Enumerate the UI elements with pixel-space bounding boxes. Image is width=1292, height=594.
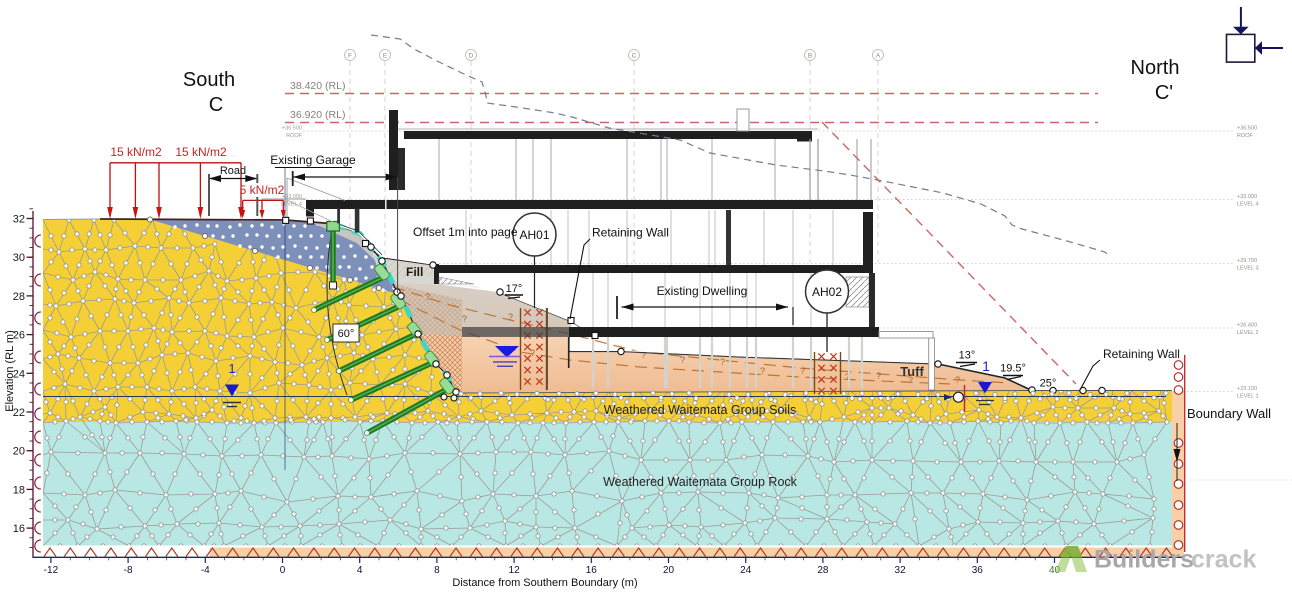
svg-text:1: 1 xyxy=(228,361,235,376)
svg-text:Retaining Wall: Retaining Wall xyxy=(1103,347,1180,361)
svg-text:+33.000: +33.000 xyxy=(1237,194,1257,200)
svg-text:12: 12 xyxy=(509,565,521,576)
svg-text:A: A xyxy=(876,53,881,60)
svg-text:Distance from Southern Boundar: Distance from Southern Boundary (m) xyxy=(452,577,637,589)
svg-text:32: 32 xyxy=(895,565,907,576)
svg-text:Road: Road xyxy=(220,165,246,177)
svg-text:?: ? xyxy=(800,366,805,376)
svg-text:AH02: AH02 xyxy=(812,285,842,299)
svg-text:-4: -4 xyxy=(201,565,210,576)
svg-text:18: 18 xyxy=(13,484,25,496)
svg-text:D: D xyxy=(469,53,474,60)
svg-text:Boundary Wall: Boundary Wall xyxy=(1187,406,1271,421)
svg-text:B: B xyxy=(808,53,812,60)
svg-text:Weathered Waitemata Group Soil: Weathered Waitemata Group Soils xyxy=(604,403,796,417)
svg-text:5 kN/m2: 5 kN/m2 xyxy=(240,183,285,197)
svg-text:16: 16 xyxy=(586,565,598,576)
svg-text:28: 28 xyxy=(13,291,25,303)
svg-text:15 kN/m2: 15 kN/m2 xyxy=(110,145,162,159)
svg-text:-12: -12 xyxy=(44,565,59,576)
svg-text:17°: 17° xyxy=(506,283,523,295)
svg-text:F: F xyxy=(348,53,352,60)
svg-text:8: 8 xyxy=(434,565,440,576)
svg-text:North: North xyxy=(1131,57,1180,79)
svg-text:?: ? xyxy=(760,366,765,376)
svg-text:38.420 (RL): 38.420 (RL) xyxy=(290,80,345,92)
svg-text:13°: 13° xyxy=(959,350,976,362)
svg-text:?: ? xyxy=(508,312,513,322)
svg-text:Fill: Fill xyxy=(406,265,423,279)
svg-text:crack: crack xyxy=(1191,546,1256,574)
svg-text:20: 20 xyxy=(663,565,675,576)
svg-text:36.920 (RL): 36.920 (RL) xyxy=(290,109,345,121)
svg-text:28: 28 xyxy=(817,565,829,576)
svg-text:?: ? xyxy=(876,371,881,381)
svg-text:Builders: Builders xyxy=(1094,546,1194,574)
svg-text:?: ? xyxy=(425,292,430,302)
svg-text:?: ? xyxy=(955,375,960,385)
svg-text:25°: 25° xyxy=(1040,378,1057,390)
svg-text:Existing Dwelling: Existing Dwelling xyxy=(657,284,748,298)
svg-text:16: 16 xyxy=(13,523,25,535)
svg-text:30: 30 xyxy=(13,252,25,264)
svg-text:60°: 60° xyxy=(338,328,355,340)
svg-text:LEVEL 1: LEVEL 1 xyxy=(1237,394,1259,400)
svg-text:E: E xyxy=(383,53,388,60)
svg-text:15 kN/m2: 15 kN/m2 xyxy=(175,145,227,159)
svg-text:Weathered Waitemata Group Rock: Weathered Waitemata Group Rock xyxy=(603,475,798,489)
svg-text:LEVEL 3: LEVEL 3 xyxy=(1237,266,1259,272)
svg-text:Tuff: Tuff xyxy=(900,364,924,379)
svg-text:C: C xyxy=(632,53,637,60)
svg-text:ROOF: ROOF xyxy=(286,133,303,139)
svg-text:LEVEL 4: LEVEL 4 xyxy=(1237,202,1259,208)
svg-text:19.5°: 19.5° xyxy=(1000,363,1026,375)
svg-text:-8: -8 xyxy=(124,565,133,576)
svg-text:?: ? xyxy=(720,357,725,367)
svg-text:+36.500: +36.500 xyxy=(1237,126,1257,132)
svg-text:C': C' xyxy=(1155,82,1173,104)
svg-text:+23.100: +23.100 xyxy=(1237,386,1257,392)
svg-text:32: 32 xyxy=(13,214,25,226)
svg-text:LEVEL 2: LEVEL 2 xyxy=(1237,330,1259,336)
svg-text:?: ? xyxy=(462,314,467,324)
svg-text:Offset 1m into page: Offset 1m into page xyxy=(413,225,518,239)
svg-text:AH01: AH01 xyxy=(519,228,549,242)
svg-text:+36.500: +36.500 xyxy=(282,126,302,132)
svg-text:4: 4 xyxy=(357,565,363,576)
svg-text:Retaining Wall: Retaining Wall xyxy=(592,226,669,240)
svg-text:?: ? xyxy=(680,355,685,365)
svg-text:+29.700: +29.700 xyxy=(1237,258,1257,264)
svg-text:20: 20 xyxy=(13,446,25,458)
svg-text:0: 0 xyxy=(280,565,286,576)
svg-text:1: 1 xyxy=(982,358,990,374)
svg-text:South: South xyxy=(183,69,235,91)
svg-text:C: C xyxy=(209,94,223,116)
svg-text:ROOF: ROOF xyxy=(1237,133,1254,139)
svg-text:36: 36 xyxy=(972,565,984,576)
svg-text:24: 24 xyxy=(740,565,752,576)
svg-text:Existing Garage: Existing Garage xyxy=(270,153,356,167)
svg-text:+26.400: +26.400 xyxy=(1237,323,1257,329)
svg-text:Elevation (RL m): Elevation (RL m) xyxy=(4,330,16,412)
